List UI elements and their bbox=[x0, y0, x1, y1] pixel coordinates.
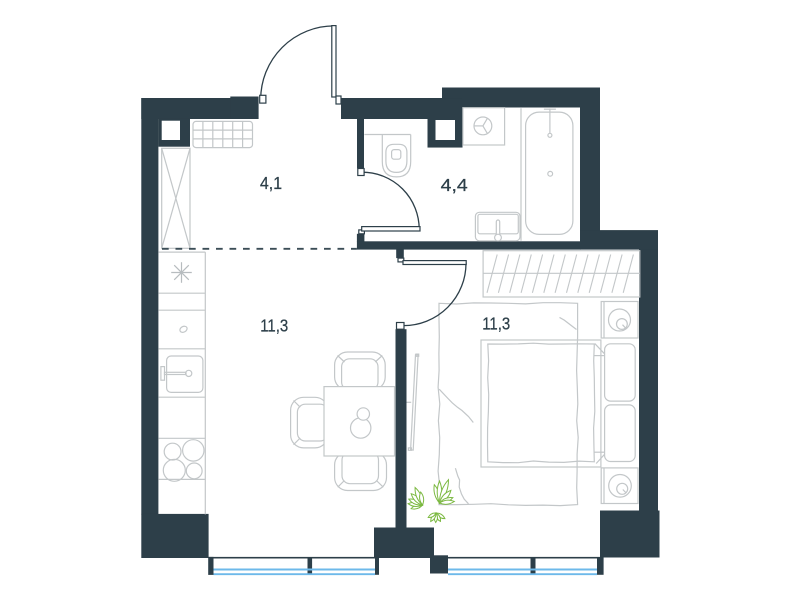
svg-text:11,3: 11,3 bbox=[482, 313, 510, 333]
svg-text:4,1: 4,1 bbox=[260, 173, 282, 193]
svg-text:11,3: 11,3 bbox=[260, 316, 288, 336]
svg-text:4,4: 4,4 bbox=[441, 175, 468, 195]
